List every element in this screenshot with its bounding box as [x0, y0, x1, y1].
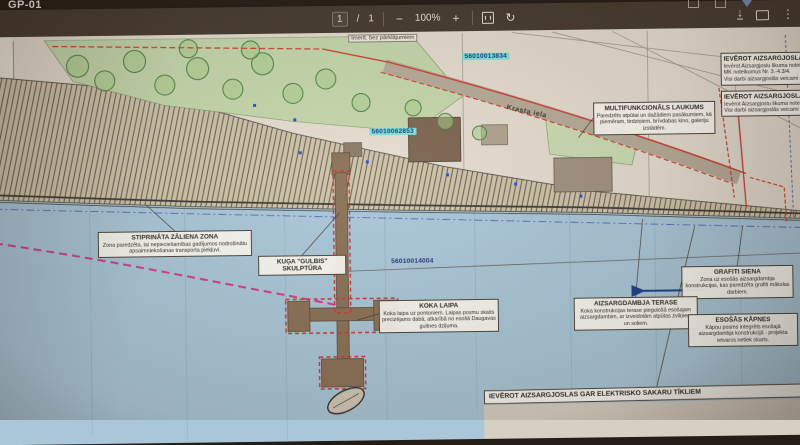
- annotation-grafiti-siena: GRAFITI SIENA Zona uz esošās aizsargdamb…: [681, 265, 793, 299]
- pdf-page[interactable]: + Imerit. bez pārklājumiem Krasta iela 5…: [0, 27, 800, 445]
- download-icon[interactable]: ↓: [737, 9, 743, 20]
- annotation-esosas-kapnes: ESOŠĀS KĀPNES Kāpņu posms integrēts esoš…: [688, 313, 798, 347]
- annotation-body: Paredzēts atpūtai un dažādiem pasākumiem…: [596, 112, 712, 133]
- more-options-icon[interactable]: ⋮: [782, 6, 794, 20]
- annotation-body: Zona paredzēta, lai nepieciešamības gadī…: [101, 241, 249, 256]
- annotation-aizsargdambja-terase: AIZSARGDAMBJA TERASE Koka konstrukcijas …: [574, 296, 698, 331]
- annotation-multifunkcionals-laukums: MULTIFUNKCIONĀLS LAUKUMS Paredzēts atpūt…: [593, 101, 715, 136]
- browser-chrome-icons: [688, 0, 752, 8]
- cadastre-number: 56010014004: [391, 258, 434, 266]
- annotation-stiprinata-zaliena-zona: STIPRINĀTA ZĀLIENA ZONA Zona paredzēta, …: [98, 230, 252, 258]
- annotation-body: Zona uz esošās aizsargdambja konstrukcij…: [684, 276, 790, 297]
- annotation-body: Kāpņu posms integrēts esošajā aizsargdam…: [691, 324, 795, 345]
- cadastre-number: 56010013834: [462, 53, 509, 61]
- annotation-title: SKULPTŪRA: [261, 265, 343, 274]
- zoom-in-button[interactable]: +: [449, 12, 462, 24]
- annotation-title: IEVĒROT AIZSARGJOSLAS ŪDEN: [723, 54, 800, 63]
- toolbar-divider: [471, 11, 472, 25]
- annotation-kuga-gulbis-skulptura: KUĢA "GULBIS" SKULPTŪRA: [258, 255, 346, 277]
- zoom-level[interactable]: 100%: [415, 12, 441, 23]
- annotation-body: Koka konstrukcijas terase piegulošā esoš…: [577, 307, 695, 328]
- page-total: 1: [368, 13, 374, 24]
- toolbar-divider: [383, 12, 384, 26]
- browser-profile-icon[interactable]: [742, 0, 752, 7]
- annotation-aizsargjosla-gaze: IEVĒROT AIZSARGJOSLAS GĀ Ievērot Aizsarg…: [721, 90, 800, 117]
- print-icon[interactable]: [756, 10, 769, 20]
- annotation-body: Koka laipa uz pontoniem. Laipas posmu sk…: [382, 309, 496, 330]
- pdf-tab-title[interactable]: GP-01: [8, 0, 42, 11]
- annotation-koka-laipa: KOKA LAIPA Koka laipa uz pontoniem. Laip…: [379, 299, 499, 334]
- annotation-title: IEVĒROT AIZSARGJOSLAS GĀ: [724, 92, 800, 101]
- page-bottom-strip: [484, 399, 800, 439]
- fit-page-icon[interactable]: [481, 11, 493, 23]
- page-separator: /: [356, 14, 359, 25]
- pdf-viewer: 1 / 1 − 100% + ↻ ↓ ⋮: [0, 0, 800, 442]
- zoom-out-button[interactable]: −: [393, 12, 406, 24]
- browser-restore-icon[interactable]: [715, 0, 726, 8]
- surface-note-label: Imerit. bez pārklājumiem: [348, 34, 417, 43]
- screen-photo: GP-01 1 / 1 − 100% + ↻ ↓ ⋮: [0, 0, 800, 420]
- annotation-body: Visi darbi aizsargjoslās veicami sa: [724, 107, 800, 115]
- page-number-input[interactable]: 1: [332, 12, 348, 27]
- browser-window-icon[interactable]: [688, 0, 699, 8]
- rotate-icon[interactable]: ↻: [502, 11, 518, 23]
- annotation-body: Visi darbi aizsargjoslās veicami sas: [724, 76, 800, 84]
- cadastre-number: 56010062853: [369, 128, 416, 136]
- annotation-aizsargjosla-udens: IEVĒROT AIZSARGJOSLAS ŪDEN Ievērot Aizsa…: [720, 52, 800, 86]
